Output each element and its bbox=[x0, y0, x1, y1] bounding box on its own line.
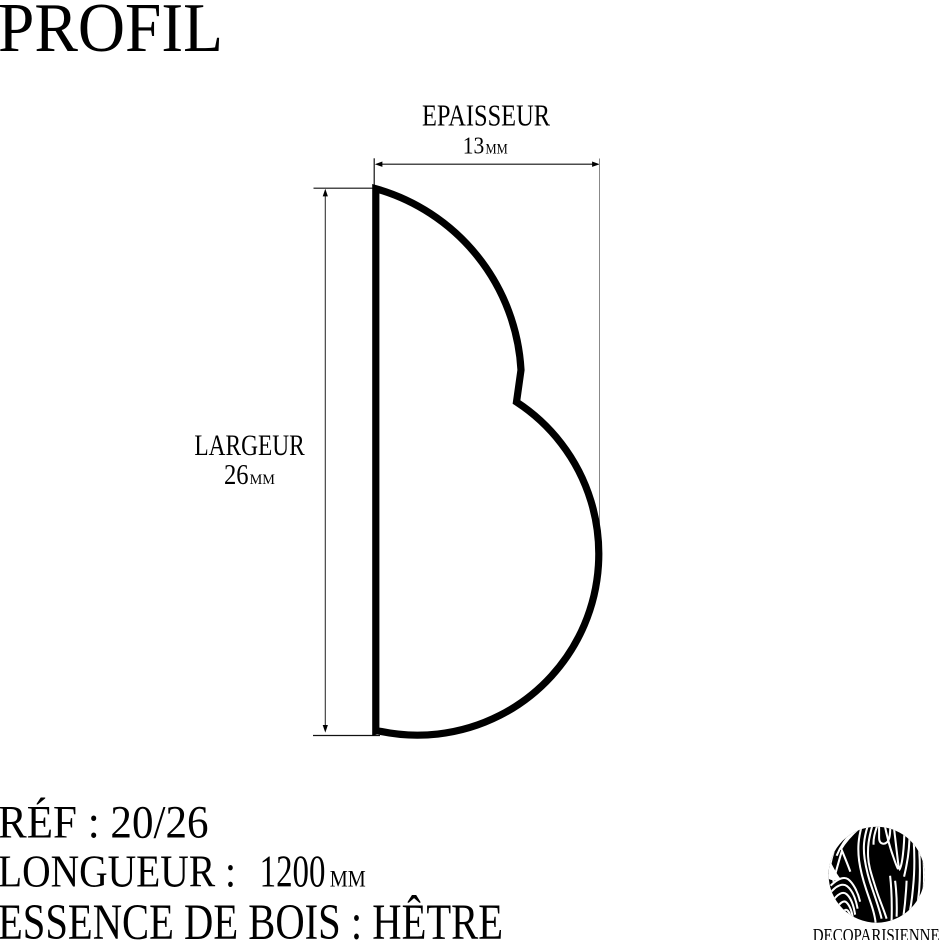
svg-text:ESSENCE DE BOIS : HÊTRE: ESSENCE DE BOIS : HÊTRE bbox=[0, 894, 503, 940]
svg-text:MM: MM bbox=[250, 472, 275, 488]
svg-text:13: 13 bbox=[463, 133, 485, 160]
svg-text:EPAISSEUR: EPAISSEUR bbox=[422, 98, 550, 133]
svg-text:MM: MM bbox=[330, 867, 366, 892]
svg-text:MM: MM bbox=[486, 142, 508, 158]
svg-text:DECOPARISIENNE: DECOPARISIENNE bbox=[813, 926, 940, 940]
svg-text:26: 26 bbox=[224, 460, 249, 491]
svg-text:RÉF : 20/26: RÉF : 20/26 bbox=[0, 798, 209, 849]
svg-text:LARGEUR: LARGEUR bbox=[194, 429, 304, 462]
svg-text:1200: 1200 bbox=[260, 846, 326, 897]
svg-text:LONGUEUR :: LONGUEUR : bbox=[0, 846, 236, 897]
svg-text:PROFIL: PROFIL bbox=[0, 0, 223, 67]
